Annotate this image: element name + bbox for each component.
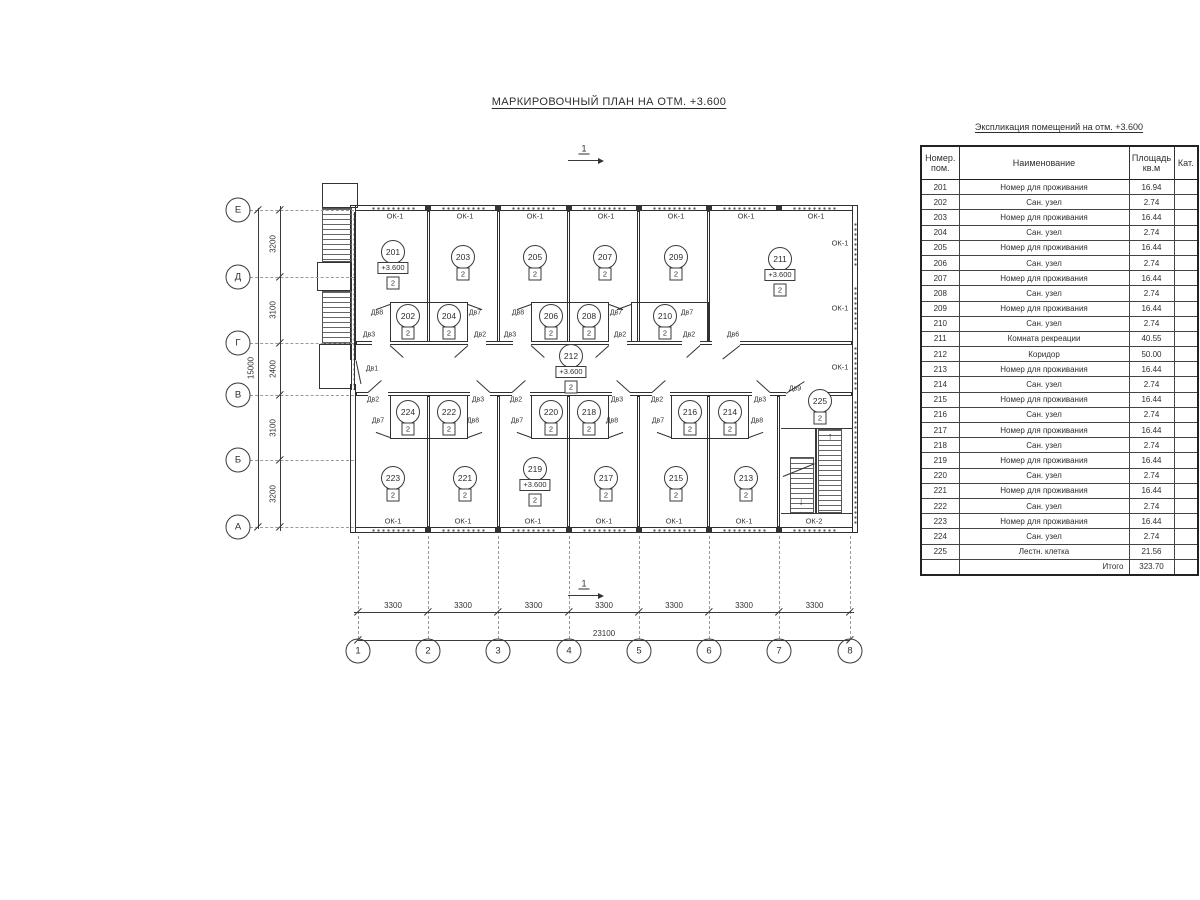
door-opening xyxy=(372,341,390,345)
room-number-bubble: 220 xyxy=(539,400,563,424)
door-label: Дв7 xyxy=(511,418,523,425)
cell-area: 2.74 xyxy=(1129,286,1174,301)
axis-extension-line xyxy=(569,536,570,639)
cell-category xyxy=(1174,301,1198,316)
dimension-value: 3200 xyxy=(269,235,278,253)
cell-category xyxy=(1174,483,1198,498)
door-leaf xyxy=(531,345,545,358)
category-mark: 2 xyxy=(459,489,472,502)
axis-bubble: Г xyxy=(226,331,251,356)
table-row: 206Сан. узел2.74 xyxy=(921,255,1198,270)
cell-area: 16.44 xyxy=(1129,423,1174,438)
dimension-value: 3300 xyxy=(525,601,543,610)
cell-area: 16.44 xyxy=(1129,392,1174,407)
room-number-bubble: 221 xyxy=(453,466,477,490)
table-row: 210Сан. узел2.74 xyxy=(921,316,1198,331)
cell-area: 2.74 xyxy=(1129,407,1174,422)
dimension-value: 3300 xyxy=(665,601,683,610)
cell-category xyxy=(1174,316,1198,331)
cell-room-number: 204 xyxy=(921,225,959,240)
wall xyxy=(777,396,780,527)
category-mark: 2 xyxy=(670,489,683,502)
cell-name: Сан. узел xyxy=(959,195,1129,210)
category-mark: 2 xyxy=(387,489,400,502)
wall xyxy=(637,396,640,527)
category-mark: 2 xyxy=(545,327,558,340)
door-leaf xyxy=(616,380,630,393)
door-opening xyxy=(652,392,670,396)
door-leaf xyxy=(390,345,404,358)
cell-name: Номер для проживания xyxy=(959,240,1129,255)
cell-area: 16.44 xyxy=(1129,240,1174,255)
room-number-bubble: 212 xyxy=(559,344,583,368)
wall xyxy=(497,396,500,527)
door-label: Дв3 xyxy=(754,397,766,404)
cell-category xyxy=(1174,331,1198,346)
cell-room-number: 223 xyxy=(921,514,959,529)
cell-category xyxy=(1174,514,1198,529)
wall-junction xyxy=(566,205,572,211)
room-number-bubble: 224 xyxy=(396,400,420,424)
cell-room-number: 222 xyxy=(921,498,959,513)
wall-junction xyxy=(495,527,501,533)
cell-category xyxy=(1174,529,1198,544)
cell-name: Сан. узел xyxy=(959,498,1129,513)
cell-room-number: 212 xyxy=(921,347,959,362)
exterior-stair-flight xyxy=(322,291,352,344)
elevation-mark: +3.600 xyxy=(764,269,795,281)
cell-area: 2.74 xyxy=(1129,316,1174,331)
cell-category xyxy=(1174,559,1198,575)
table-row: 223Номер для проживания16.44 xyxy=(921,514,1198,529)
door-label: Дв7 xyxy=(372,418,384,425)
door-label: Дв2 xyxy=(683,332,695,339)
cell-name: Номер для проживания xyxy=(959,210,1129,225)
cell-category xyxy=(1174,453,1198,468)
cell-name: Коридор xyxy=(959,347,1129,362)
room-number-bubble: 206 xyxy=(539,304,563,328)
axis-extension-line xyxy=(250,343,354,344)
door-label: Дв3 xyxy=(504,332,516,339)
cell-room-number: 213 xyxy=(921,362,959,377)
room-number-bubble: 201 xyxy=(381,240,405,264)
table-row: 221Номер для проживания16.44 xyxy=(921,483,1198,498)
door-label: Дв2 xyxy=(614,332,626,339)
section-mark-arrow xyxy=(598,158,604,164)
category-mark: 2 xyxy=(402,327,415,340)
cell-area: 2.74 xyxy=(1129,498,1174,513)
door-leaf xyxy=(609,432,623,438)
window xyxy=(371,527,415,533)
cell-name: Сан. узел xyxy=(959,225,1129,240)
stair-landing-line xyxy=(781,513,852,514)
room-number-bubble: 210 xyxy=(653,304,677,328)
cell-room-number: 217 xyxy=(921,423,959,438)
room-number-bubble: 205 xyxy=(523,245,547,269)
table-row: 214Сан. узел2.74 xyxy=(921,377,1198,392)
window-label: ОК-1 xyxy=(527,212,544,221)
dimension-total: 15000 xyxy=(247,357,256,379)
axis-bubble: 3 xyxy=(486,639,511,664)
door-leaf xyxy=(517,432,531,438)
axis-extension-line xyxy=(250,460,354,461)
wall-junction xyxy=(636,527,642,533)
room-number-bubble: 219 xyxy=(523,457,547,481)
cell-category xyxy=(1174,468,1198,483)
cell-category xyxy=(1174,240,1198,255)
door-label: Дв7 xyxy=(469,310,481,317)
window xyxy=(852,222,858,266)
col-header-category: Кат. xyxy=(1174,146,1198,180)
window-label: ОК-1 xyxy=(457,212,474,221)
door-opening xyxy=(368,392,388,396)
window xyxy=(652,205,696,211)
section-mark-number: 1 xyxy=(578,144,589,155)
wall-junction xyxy=(495,205,501,211)
table-row: 213Номер для проживания16.44 xyxy=(921,362,1198,377)
dimension-total: 23100 xyxy=(593,629,615,638)
door-opening xyxy=(470,392,490,396)
category-mark: 2 xyxy=(670,268,683,281)
cell-area: 2.74 xyxy=(1129,529,1174,544)
cell-room-number: 208 xyxy=(921,286,959,301)
cell-area: 16.44 xyxy=(1129,514,1174,529)
room-number-bubble: 218 xyxy=(577,400,601,424)
wall-junction xyxy=(425,527,431,533)
table-row: 207Номер для проживания16.44 xyxy=(921,271,1198,286)
cell-name: Сан. узел xyxy=(959,255,1129,270)
door-label: Дв8 xyxy=(751,418,763,425)
category-mark: 2 xyxy=(402,423,415,436)
drawing-sheet: МАРКИРОВОЧНЫЙ ПЛАН НА ОТМ. +3.600 Экспли… xyxy=(0,0,1200,900)
door-opening xyxy=(682,341,700,345)
cell-area: 2.74 xyxy=(1129,438,1174,453)
window-label: ОК-1 xyxy=(666,517,683,526)
dimension-value: 3300 xyxy=(595,601,613,610)
door-leaf xyxy=(468,432,482,438)
room-number-bubble: 225 xyxy=(808,389,832,413)
axis-bubble: Д xyxy=(226,265,251,290)
window-label: ОК-1 xyxy=(832,363,849,372)
dimension-line xyxy=(358,640,850,641)
table-row: 220Сан. узел2.74 xyxy=(921,468,1198,483)
total-label: Итого xyxy=(959,559,1129,575)
door-opening xyxy=(712,341,740,345)
window xyxy=(582,205,626,211)
door-label: Дв8 xyxy=(371,310,383,317)
cell-room-number: 207 xyxy=(921,271,959,286)
section-mark-line xyxy=(568,160,598,161)
window xyxy=(852,286,858,330)
section-mark-number: 1 xyxy=(578,579,589,590)
door-label: Дв3 xyxy=(611,397,623,404)
table-row: 215Номер для проживания16.44 xyxy=(921,392,1198,407)
window xyxy=(652,527,696,533)
window xyxy=(441,527,485,533)
cell-room-number: 218 xyxy=(921,438,959,453)
cell-name: Номер для проживания xyxy=(959,180,1129,195)
dimension-line xyxy=(280,206,281,531)
cell-area: 2.74 xyxy=(1129,468,1174,483)
table-row: 225Лестн. клетка21.56 xyxy=(921,544,1198,559)
cell-category xyxy=(1174,195,1198,210)
cell-name: Сан. узел xyxy=(959,286,1129,301)
table-row: 205Номер для проживания16.44 xyxy=(921,240,1198,255)
cell-category xyxy=(1174,362,1198,377)
window-label: ОК-1 xyxy=(387,212,404,221)
axis-extension-line xyxy=(250,527,354,528)
window-label: ОК-1 xyxy=(668,212,685,221)
door-label: Дв2 xyxy=(474,332,486,339)
window xyxy=(792,527,836,533)
cell-name: Номер для проживания xyxy=(959,392,1129,407)
window-label: ОК-1 xyxy=(525,517,542,526)
room-number-bubble: 215 xyxy=(664,466,688,490)
section-mark-line xyxy=(568,595,598,596)
axis-bubble: 6 xyxy=(697,639,722,664)
exterior-stair-landing xyxy=(322,183,358,208)
cell-category xyxy=(1174,255,1198,270)
axis-bubble: Е xyxy=(226,198,251,223)
cell-room-number: 211 xyxy=(921,331,959,346)
table-total-row: Итого323.70 xyxy=(921,559,1198,575)
window-label: ОК-1 xyxy=(385,517,402,526)
cell-area: 16.44 xyxy=(1129,362,1174,377)
door-opening xyxy=(612,392,630,396)
table-row: 224Сан. узел2.74 xyxy=(921,529,1198,544)
cell-room-number: 225 xyxy=(921,544,959,559)
cell-area: 16.44 xyxy=(1129,271,1174,286)
dimension-value: 3100 xyxy=(269,419,278,437)
axis-extension-line xyxy=(850,536,851,639)
door-opening xyxy=(512,392,530,396)
cell-name: Номер для проживания xyxy=(959,514,1129,529)
door-label: Дв8 xyxy=(467,418,479,425)
door-label: Дв2 xyxy=(510,397,522,404)
cell-room-number: 201 xyxy=(921,180,959,195)
elevation-mark: +3.600 xyxy=(377,262,408,274)
door-leaf xyxy=(749,432,763,438)
exterior-stair-landing xyxy=(319,344,352,389)
cell-name: Комната рекреации xyxy=(959,331,1129,346)
category-mark: 2 xyxy=(387,277,400,290)
elevation-mark: +3.600 xyxy=(555,366,586,378)
door-opening xyxy=(752,392,770,396)
table-row: 216Сан. узел2.74 xyxy=(921,407,1198,422)
axis-extension-line xyxy=(250,395,354,396)
room-number-bubble: 216 xyxy=(678,400,702,424)
door-label: Дв7 xyxy=(610,310,622,317)
door-label: Дв8 xyxy=(512,310,524,317)
cell-category xyxy=(1174,407,1198,422)
cell-category xyxy=(1174,498,1198,513)
col-header-area: Площадь кв.м xyxy=(1129,146,1174,180)
room-number-bubble: 213 xyxy=(734,466,758,490)
cell-room-number: 224 xyxy=(921,529,959,544)
door-label: Дв3 xyxy=(363,332,375,339)
cell-area: 50.00 xyxy=(1129,347,1174,362)
door-leaf xyxy=(476,380,490,393)
door-opening xyxy=(609,341,627,345)
cell-name: Сан. узел xyxy=(959,468,1129,483)
category-mark: 2 xyxy=(443,423,456,436)
cell-room-number: 221 xyxy=(921,483,959,498)
cell-category xyxy=(1174,392,1198,407)
exterior-stair-flight xyxy=(322,208,352,262)
room-number-bubble: 222 xyxy=(437,400,461,424)
room-number-bubble: 211 xyxy=(768,247,792,271)
dimension-value: 2400 xyxy=(269,360,278,378)
table-row: 203Номер для проживания16.44 xyxy=(921,210,1198,225)
dimension-value: 3300 xyxy=(735,601,753,610)
category-mark: 2 xyxy=(457,268,470,281)
room-number-bubble: 217 xyxy=(594,466,618,490)
cell-category xyxy=(1174,286,1198,301)
stair-divider xyxy=(815,429,817,513)
room-number-bubble: 203 xyxy=(451,245,475,269)
axis-extension-line xyxy=(779,536,780,639)
axis-bubble: А xyxy=(226,515,251,540)
door-label: Дв7 xyxy=(652,418,664,425)
axis-extension-line xyxy=(250,210,354,211)
cell-name: Сан. узел xyxy=(959,377,1129,392)
window-label: ОК-1 xyxy=(808,212,825,221)
axis-bubble: В xyxy=(226,383,251,408)
door-leaf xyxy=(454,345,468,358)
category-mark: 2 xyxy=(774,284,787,297)
cell-name: Сан. узел xyxy=(959,438,1129,453)
dimension-line xyxy=(258,208,259,529)
table-row: 217Номер для проживания16.44 xyxy=(921,423,1198,438)
wall-junction xyxy=(776,527,782,533)
cell-area: 16.94 xyxy=(1129,180,1174,195)
cell-area: 16.44 xyxy=(1129,453,1174,468)
window-label: ОК-1 xyxy=(738,212,755,221)
axis-bubble: 2 xyxy=(416,639,441,664)
cell-name: Номер для проживания xyxy=(959,453,1129,468)
table-header-row: Номер. пом. Наименование Площадь кв.м Ка… xyxy=(921,146,1198,180)
cell-category xyxy=(1174,544,1198,559)
window-label: ОК-1 xyxy=(832,304,849,313)
category-mark: 2 xyxy=(583,327,596,340)
window-label: ОК-2 xyxy=(806,517,823,526)
category-mark: 2 xyxy=(565,381,578,394)
col-header-name: Наименование xyxy=(959,146,1129,180)
cell-name: Лестн. клетка xyxy=(959,544,1129,559)
dimension-value: 3300 xyxy=(454,601,472,610)
cell-name: Номер для проживания xyxy=(959,423,1129,438)
cell-area: 21.56 xyxy=(1129,544,1174,559)
axis-bubble: 1 xyxy=(346,639,371,664)
axis-extension-line xyxy=(358,536,359,639)
wall-junction xyxy=(566,527,572,533)
explication-table: Номер. пом. Наименование Площадь кв.м Ка… xyxy=(920,145,1199,576)
door-leaf xyxy=(686,345,700,358)
cell-room-number: 209 xyxy=(921,301,959,316)
window xyxy=(441,205,485,211)
door-label: Дв1 xyxy=(366,366,378,373)
cell-category xyxy=(1174,225,1198,240)
table-row: 222Сан. узел2.74 xyxy=(921,498,1198,513)
door-leaf xyxy=(595,345,609,358)
cell-name: Номер для проживания xyxy=(959,301,1129,316)
table-row: 208Сан. узел2.74 xyxy=(921,286,1198,301)
door-label: Дв3 xyxy=(472,397,484,404)
cell-name: Сан. узел xyxy=(959,529,1129,544)
table-row: 201Номер для проживания16.94 xyxy=(921,180,1198,195)
window xyxy=(852,400,858,524)
window-label: ОК-1 xyxy=(736,517,753,526)
window xyxy=(792,205,836,211)
table-row: 209Номер для проживания16.44 xyxy=(921,301,1198,316)
total-value: 323.70 xyxy=(1129,559,1174,575)
cell-category xyxy=(1174,438,1198,453)
window xyxy=(511,205,555,211)
category-mark: 2 xyxy=(599,268,612,281)
cell-category xyxy=(1174,180,1198,195)
category-mark: 2 xyxy=(814,412,827,425)
room-number-bubble: 207 xyxy=(593,245,617,269)
axis-bubble: 4 xyxy=(557,639,582,664)
cell-area: 2.74 xyxy=(1129,255,1174,270)
door-label: Дв2 xyxy=(367,397,379,404)
category-mark: 2 xyxy=(529,268,542,281)
door-leaf xyxy=(512,380,526,393)
category-mark: 2 xyxy=(659,327,672,340)
stair-down-arrow: ↓ xyxy=(799,497,804,508)
wall xyxy=(497,211,500,342)
category-mark: 2 xyxy=(600,489,613,502)
category-mark: 2 xyxy=(583,423,596,436)
axis-bubble: 5 xyxy=(627,639,652,664)
category-mark: 2 xyxy=(684,423,697,436)
axis-extension-line xyxy=(250,277,354,278)
axis-extension-line xyxy=(639,536,640,639)
door-label: Дв6 xyxy=(727,332,739,339)
cell-name: Сан. узел xyxy=(959,407,1129,422)
window-label: ОК-1 xyxy=(598,212,615,221)
cell-area: 2.74 xyxy=(1129,377,1174,392)
room-number-bubble: 208 xyxy=(577,304,601,328)
cell-room-number: 216 xyxy=(921,407,959,422)
axis-bubble: 8 xyxy=(838,639,863,664)
cell-name: Номер для проживания xyxy=(959,271,1129,286)
cell-room-number: 214 xyxy=(921,377,959,392)
cell-area: 2.74 xyxy=(1129,225,1174,240)
door-leaf xyxy=(657,432,671,438)
dimension-line xyxy=(354,612,854,613)
door-label: Дв9 xyxy=(789,386,801,393)
dimension-value: 3200 xyxy=(269,485,278,503)
room-number-bubble: 223 xyxy=(381,466,405,490)
door-leaf xyxy=(652,380,666,393)
window xyxy=(511,527,555,533)
wall-junction xyxy=(636,205,642,211)
room-number-bubble: 209 xyxy=(664,245,688,269)
door-label: Дв8 xyxy=(606,418,618,425)
table-row: 212Коридор50.00 xyxy=(921,347,1198,362)
room-number-bubble: 214 xyxy=(718,400,742,424)
wall-junction xyxy=(776,205,782,211)
section-mark-arrow xyxy=(598,593,604,599)
door-leaf xyxy=(376,432,390,438)
cell-name: Сан. узел xyxy=(959,316,1129,331)
cell-category xyxy=(1174,377,1198,392)
category-mark: 2 xyxy=(443,327,456,340)
cell-area: 16.44 xyxy=(1129,301,1174,316)
table-row: 219Номер для проживания16.44 xyxy=(921,453,1198,468)
wall-junction xyxy=(706,205,712,211)
